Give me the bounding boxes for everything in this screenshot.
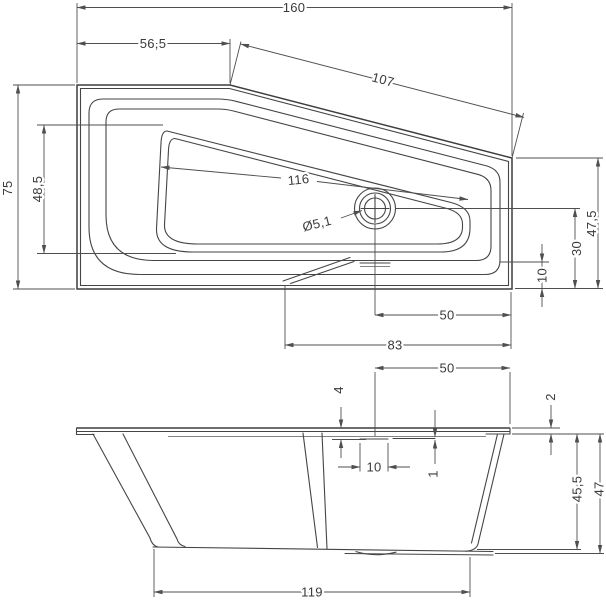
side-mid-edge-outer xyxy=(303,433,318,548)
dim-overall-length: 160 xyxy=(283,0,306,15)
dim-side-drain-to-right: 50 xyxy=(439,361,454,376)
dim-right-drain-offset: 30 xyxy=(569,241,584,256)
dim-top-edge-slanted: 107 xyxy=(370,70,396,90)
dim-basin-end-to-right: 83 xyxy=(387,338,402,353)
side-tub-outline xyxy=(77,428,511,555)
dim-rim-lip: 2 xyxy=(543,393,558,401)
side-bottom xyxy=(153,547,493,552)
dim-basin-length: 116 xyxy=(287,171,310,188)
dim-top-edge-straight: 56,5 xyxy=(140,36,167,51)
dim-base-length: 119 xyxy=(301,585,323,600)
dim-height-inner: 45,5 xyxy=(570,476,585,503)
side-right-wall-outer xyxy=(466,434,504,551)
side-dimension-lines xyxy=(154,368,600,592)
dim-recess-step: 1 xyxy=(426,470,441,478)
drain-crosshair xyxy=(361,195,389,223)
plan-basin-outline xyxy=(156,131,470,267)
side-dimension-labels: 50 4 2 10 1 45,5 47 119 xyxy=(301,361,606,600)
drawing-page: 160 56,5 107 75 48,5 116 Ø5,1 50 83 10 3… xyxy=(0,0,606,600)
side-mid-edge-inner xyxy=(322,433,327,549)
dim-right-width-total: 47,5 xyxy=(584,210,599,237)
dim-right-rim: 10 xyxy=(535,268,550,283)
technical-drawing-canvas: 160 56,5 107 75 48,5 116 Ø5,1 50 83 10 3… xyxy=(0,0,606,600)
plan-view: 160 56,5 107 75 48,5 116 Ø5,1 50 83 10 3… xyxy=(0,0,603,353)
plan-dimension-labels: 160 56,5 107 75 48,5 116 Ø5,1 50 83 10 3… xyxy=(0,0,599,353)
side-skirt-inner xyxy=(123,434,185,547)
plan-step-edge-inner xyxy=(291,262,355,284)
side-extension-lines xyxy=(154,372,604,597)
dim-recess-width: 10 xyxy=(366,460,381,475)
side-skirt-outer xyxy=(93,434,158,547)
dim-rim-to-recess: 4 xyxy=(331,386,346,394)
side-right-wall-inner xyxy=(472,434,498,543)
plan-drain xyxy=(355,188,396,229)
dim-basin-width-left: 48,5 xyxy=(30,176,45,203)
dim-drain-diameter: Ø5,1 xyxy=(301,213,333,235)
side-view: 50 4 2 10 1 45,5 47 119 xyxy=(77,361,606,600)
dim-overall-width: 75 xyxy=(0,180,15,195)
dim-height-overall: 47 xyxy=(592,481,606,496)
dim-drain-to-right: 50 xyxy=(439,308,454,323)
